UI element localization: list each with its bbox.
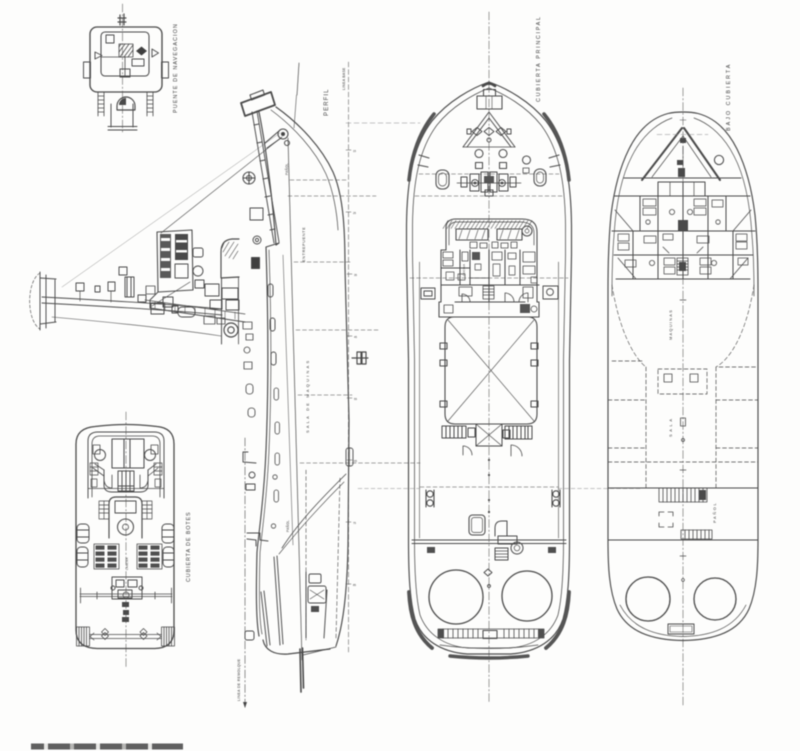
svg-text:45: 45 xyxy=(354,335,357,339)
svg-text:CUBIERTA PRINCIPAL: CUBIERTA PRINCIPAL xyxy=(536,15,542,102)
svg-text:PAÑOL: PAÑOL xyxy=(284,163,289,175)
svg-text:PAÑOL: PAÑOL xyxy=(712,502,717,523)
svg-text:PUENTE DE NAVEGACION: PUENTE DE NAVEGACION xyxy=(173,23,179,113)
svg-text:LINEA DE REMOLQUE: LINEA DE REMOLQUE xyxy=(237,658,241,701)
svg-text:PAÑOL: PAÑOL xyxy=(285,520,290,532)
svg-text:CUBIERTA DE BOTES: CUBIERTA DE BOTES xyxy=(186,511,192,582)
svg-text:BAJO CUBIERTA: BAJO CUBIERTA xyxy=(726,63,732,131)
svg-text:85: 85 xyxy=(353,583,356,587)
svg-text:65: 65 xyxy=(354,459,357,463)
svg-text:55: 55 xyxy=(354,397,357,401)
svg-text:ENTREPUENTE: ENTREPUENTE xyxy=(301,227,306,262)
svg-text:15: 15 xyxy=(353,149,356,153)
svg-text:LINEA BASE: LINEA BASE xyxy=(342,67,346,90)
svg-text:SALA: SALA xyxy=(668,416,673,437)
svg-text:COCINA: COCINA xyxy=(462,264,466,276)
svg-text:25: 25 xyxy=(353,211,356,215)
svg-text:35: 35 xyxy=(354,273,357,277)
svg-text:LANCHA: LANCHA xyxy=(125,557,129,570)
svg-text:75: 75 xyxy=(353,521,356,525)
svg-text:MAQUINAS: MAQUINAS xyxy=(668,309,673,340)
svg-text:SALA DE MAQUINAS: SALA DE MAQUINAS xyxy=(305,359,310,433)
svg-text:PERFIL: PERFIL xyxy=(324,88,330,116)
